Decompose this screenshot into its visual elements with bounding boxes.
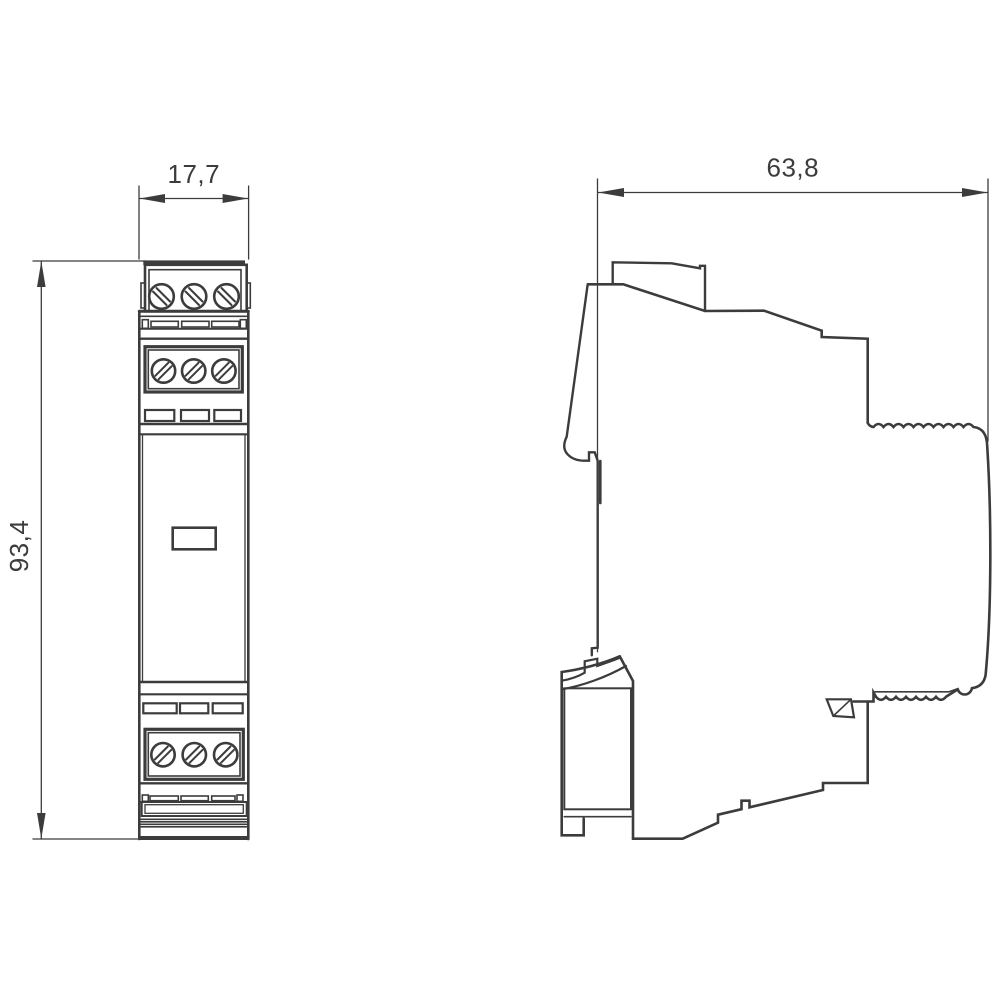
front-height-dimension: 93,4 bbox=[4, 261, 145, 839]
din-release-clip bbox=[562, 656, 633, 838]
top-terminal-block bbox=[141, 260, 250, 311]
clip-body bbox=[564, 688, 631, 809]
side-front-face bbox=[564, 284, 597, 655]
screw-terminal-icon bbox=[151, 743, 237, 766]
bottom-step-strip bbox=[139, 783, 248, 840]
terminal-side-tab-left bbox=[141, 283, 145, 308]
front-width-label: 17,7 bbox=[167, 159, 220, 189]
screw-terminal-icon bbox=[149, 284, 239, 309]
cooling-fins bbox=[141, 819, 247, 827]
arrowhead-right bbox=[962, 188, 988, 197]
bottom-terminal-block bbox=[145, 729, 243, 779]
side-view bbox=[562, 262, 991, 838]
arrowhead-left bbox=[598, 188, 624, 197]
side-depth-label: 63,8 bbox=[766, 153, 819, 183]
arrowhead-bottom bbox=[37, 813, 46, 839]
side-upper-profile bbox=[588, 284, 868, 422]
screw-terminal-icon bbox=[152, 359, 236, 382]
front-width-dimension: 17,7 bbox=[139, 159, 249, 259]
front-body bbox=[139, 434, 248, 694]
clip-spring-band bbox=[562, 658, 621, 681]
side-rear-housing bbox=[854, 423, 991, 702]
label-window bbox=[173, 528, 216, 550]
front-height-label: 93,4 bbox=[4, 520, 34, 573]
front-bottom-edge bbox=[139, 836, 248, 840]
upper-vent-slots bbox=[139, 410, 248, 434]
lower-vent-slots bbox=[143, 703, 242, 713]
arrowhead-right bbox=[223, 194, 249, 203]
front-view bbox=[139, 260, 250, 840]
arrowhead-top bbox=[37, 261, 46, 287]
middle-terminal-block bbox=[145, 347, 242, 392]
arrowhead-left bbox=[140, 194, 166, 203]
din-rail-hook bbox=[827, 699, 854, 717]
upper-step-strip bbox=[139, 311, 248, 338]
terminal-side-tab-right bbox=[247, 283, 251, 308]
technical-drawing-canvas: 17,7 93,4 bbox=[0, 0, 1000, 1000]
side-bottom-profile bbox=[633, 702, 868, 839]
side-depth-dimension: 63,8 bbox=[598, 153, 989, 652]
drawing-page: 17,7 93,4 bbox=[0, 0, 1000, 1000]
rail-ledge-line bbox=[875, 689, 958, 692]
